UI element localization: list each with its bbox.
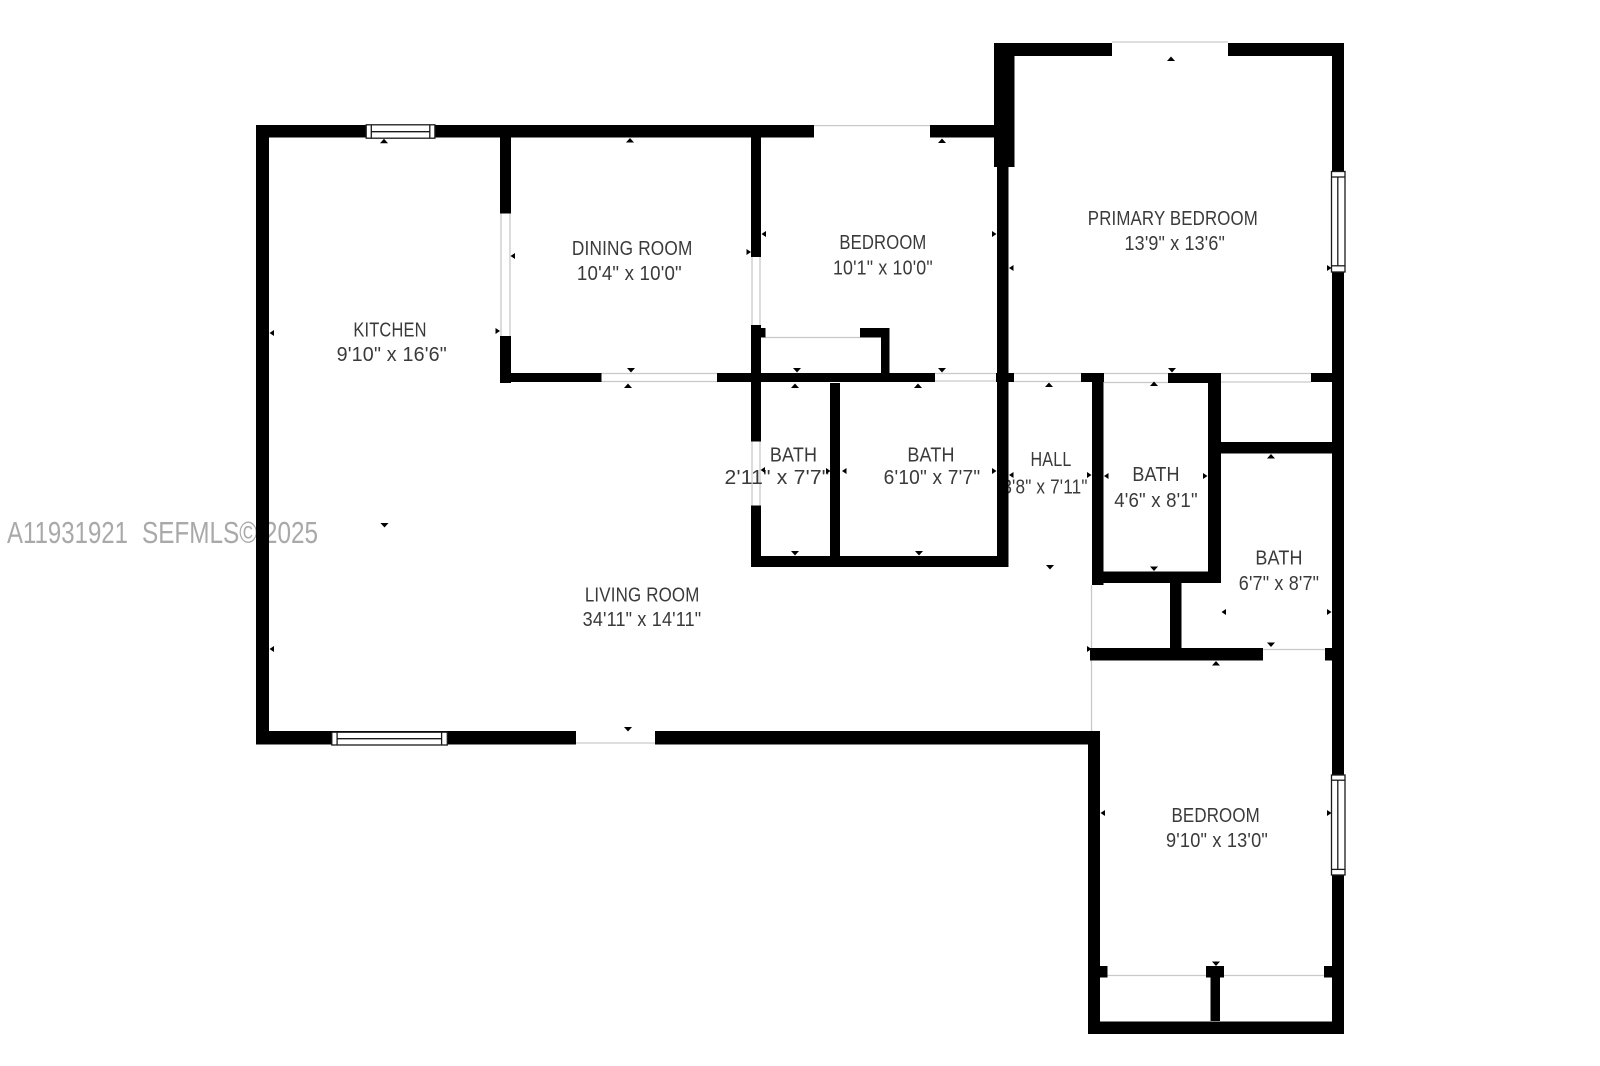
svg-text:BEDROOM: BEDROOM bbox=[1171, 805, 1260, 827]
svg-text:HALL: HALL bbox=[1031, 449, 1072, 471]
svg-text:9'10" x 16'6": 9'10" x 16'6" bbox=[337, 344, 447, 366]
svg-text:PRIMARY BEDROOM: PRIMARY BEDROOM bbox=[1088, 208, 1258, 230]
svg-text:10'4" x 10'0": 10'4" x 10'0" bbox=[577, 263, 682, 285]
svg-text:A11931921: A11931921 bbox=[7, 515, 128, 550]
svg-text:13'9" x 13'6": 13'9" x 13'6" bbox=[1125, 233, 1226, 255]
svg-text:3'8" x 7'11": 3'8" x 7'11" bbox=[1002, 477, 1087, 499]
svg-text:KITCHEN: KITCHEN bbox=[353, 320, 426, 342]
svg-text:4'6" x 8'1": 4'6" x 8'1" bbox=[1114, 490, 1198, 512]
svg-text:2'11" x 7'7": 2'11" x 7'7" bbox=[725, 467, 830, 489]
svg-text:10'1" x 10'0": 10'1" x 10'0" bbox=[833, 258, 933, 280]
svg-text:9'10" x 13'0": 9'10" x 13'0" bbox=[1166, 830, 1268, 852]
svg-text:LIVING ROOM: LIVING ROOM bbox=[585, 585, 700, 607]
svg-text:BEDROOM: BEDROOM bbox=[839, 232, 926, 254]
svg-text:SEFMLS© 2025: SEFMLS© 2025 bbox=[142, 515, 318, 550]
svg-text:BATH: BATH bbox=[1132, 464, 1179, 486]
svg-text:6'10" x 7'7": 6'10" x 7'7" bbox=[884, 467, 981, 489]
svg-text:6'7" x 8'7": 6'7" x 8'7" bbox=[1239, 573, 1319, 595]
svg-text:34'11" x 14'11": 34'11" x 14'11" bbox=[583, 609, 702, 631]
svg-text:BATH: BATH bbox=[907, 445, 954, 467]
svg-text:BATH: BATH bbox=[770, 445, 817, 467]
svg-text:BATH: BATH bbox=[1255, 548, 1302, 570]
svg-text:DINING ROOM: DINING ROOM bbox=[572, 238, 693, 260]
